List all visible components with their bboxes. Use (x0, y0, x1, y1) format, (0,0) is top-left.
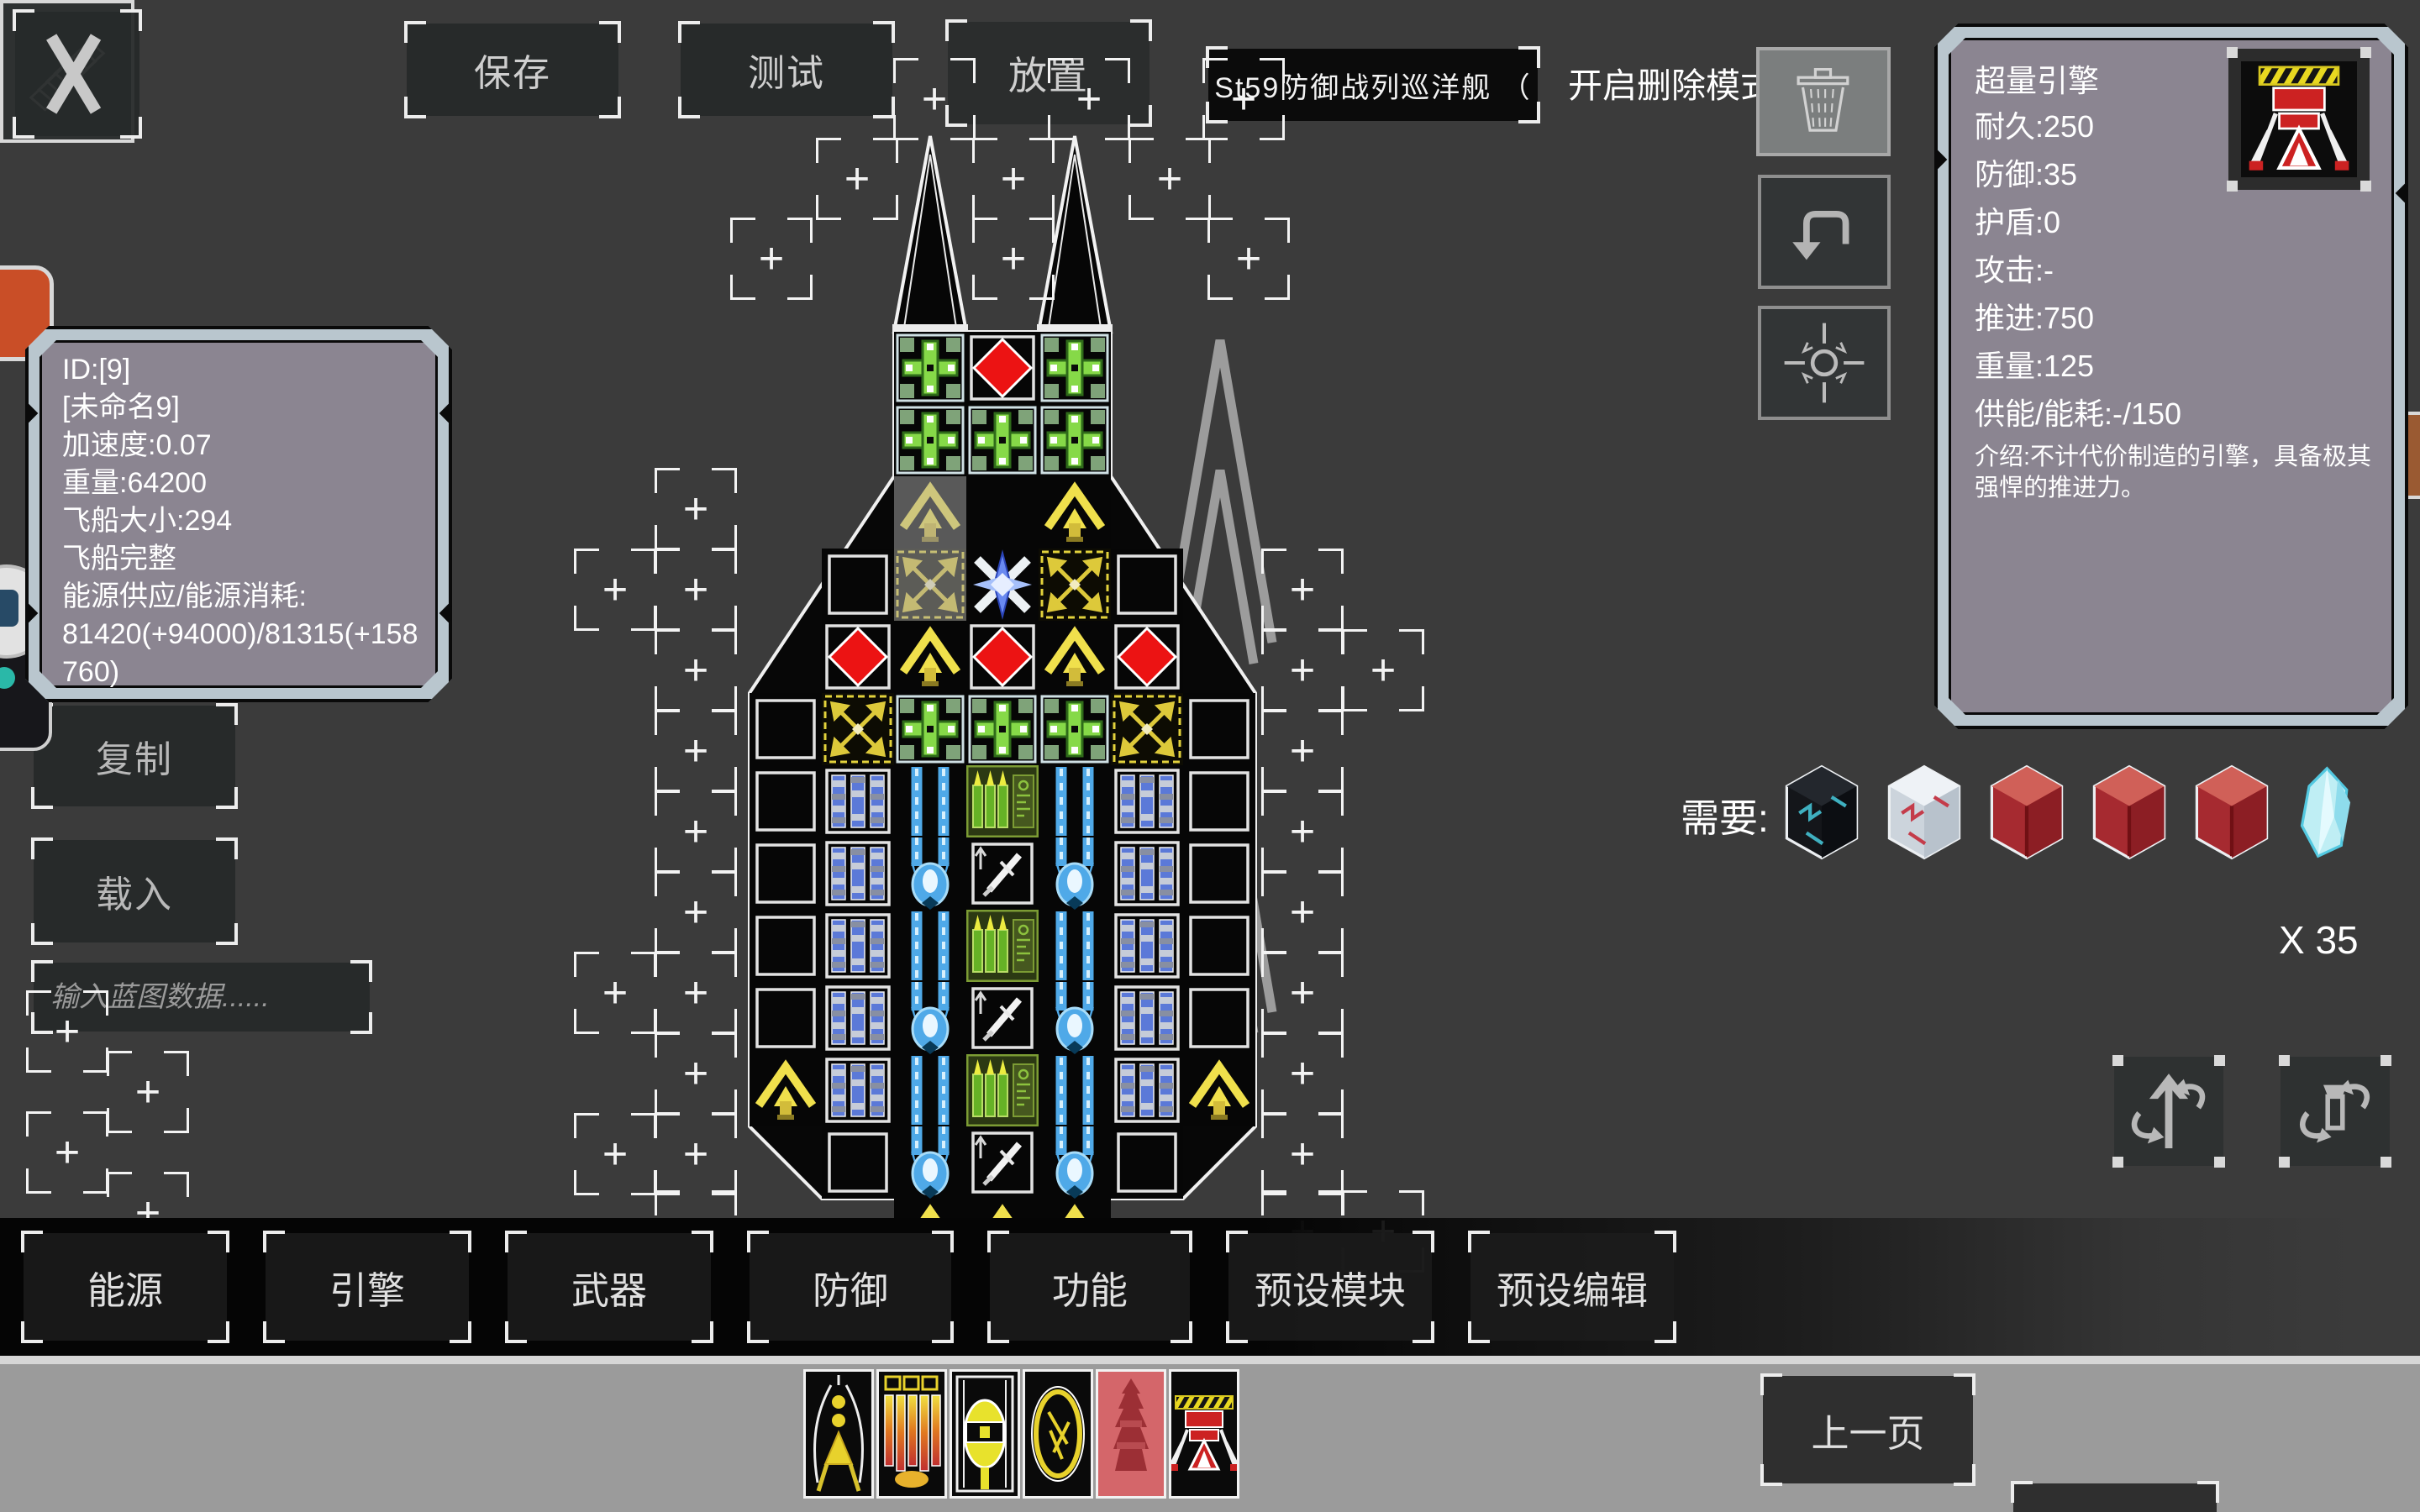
app-icon-glyph (0, 667, 15, 689)
close-button[interactable] (15, 12, 139, 136)
placement-slot[interactable]: + (1131, 140, 1208, 218)
placement-slot[interactable]: + (657, 1035, 734, 1112)
placement-slot[interactable]: + (1264, 1116, 1341, 1193)
plus-marker: + (975, 140, 1052, 218)
plus-marker: + (576, 1116, 654, 1193)
module-stats: 耐久:250防御:35护盾:0攻击:-推进:750重量:125供能/能耗:-/1… (1975, 102, 2181, 438)
placement-slot[interactable]: + (1264, 551, 1341, 628)
ship-tile-green-cross-module[interactable] (966, 693, 1039, 765)
placement-slot[interactable]: + (576, 1116, 654, 1193)
plus-marker: + (896, 60, 973, 138)
builder-screen: +++++++++++++++++++++++++++++++++++++ 保存… (0, 0, 2420, 1512)
category-tabs: 能源引擎武器防御功能预设模块预设编辑 (24, 1233, 1674, 1341)
placement-slot[interactable]: + (1050, 60, 1128, 138)
placement-slot[interactable]: + (657, 954, 734, 1032)
test-label: 测试 (748, 43, 825, 97)
placement-slot[interactable]: + (818, 140, 896, 218)
plus-marker: + (1131, 140, 1208, 218)
placement-slot[interactable]: + (29, 1114, 106, 1191)
copy-button[interactable]: 复制 (34, 706, 235, 806)
plus-marker: + (1264, 632, 1341, 709)
plus-marker: + (818, 140, 896, 218)
placement-slot[interactable]: + (109, 1053, 187, 1131)
placement-slot[interactable]: + (733, 220, 810, 297)
ship-info-line: 81420(+94000)/81315(+158760) (62, 616, 423, 691)
rotate-module-icon (2289, 1065, 2381, 1158)
placement-slot[interactable]: + (1264, 954, 1341, 1032)
trash-icon (1783, 61, 1864, 142)
placement-slot[interactable]: + (1264, 793, 1341, 870)
plus-marker: + (657, 1035, 734, 1112)
ship-tile-chain-weapon[interactable] (1039, 765, 1111, 837)
ship-tile-blue-star-core[interactable] (966, 549, 1039, 621)
tab-label: 预设模块 (1255, 1260, 1406, 1315)
ship-tile-green-battery[interactable] (966, 1054, 1039, 1126)
ship-tile-blue-lattice-module[interactable] (1111, 765, 1183, 837)
copy-label: 复制 (96, 729, 173, 783)
trash-button[interactable] (1756, 47, 1891, 156)
plus-marker: + (1264, 551, 1341, 628)
ship-tile-blue-lattice-module[interactable] (822, 1054, 894, 1126)
rotate-up-icon (2123, 1065, 2215, 1158)
ship-tile-frame-cell[interactable] (750, 982, 822, 1054)
ship-tile-yellow-thruster-selected[interactable] (894, 476, 966, 549)
plus-marker: + (1210, 220, 1287, 297)
ship-tile-red-diamond-module[interactable] (1111, 621, 1183, 693)
plus-marker: + (1264, 1116, 1341, 1193)
ship-tile-chain-claw[interactable] (1039, 1126, 1111, 1199)
plus-marker: + (733, 220, 810, 297)
ship-tile-green-cross-module[interactable] (966, 404, 1039, 476)
plus-marker: + (1264, 954, 1341, 1032)
ship-tile-red-diamond-module[interactable] (966, 621, 1039, 693)
load-button[interactable]: 载入 (34, 840, 235, 942)
palette-engine-overload[interactable] (1169, 1369, 1239, 1499)
ship-info-line: ID:[9] (62, 351, 423, 389)
ship-tile-frame-cell[interactable] (1183, 837, 1255, 910)
strip-highlight (0, 1356, 2420, 1364)
tab-label: 武器 (571, 1260, 647, 1315)
module-title: 超量引擎 (1975, 55, 2099, 101)
resource-gem-red-icon (2089, 763, 2170, 862)
placement-slot[interactable]: + (657, 874, 734, 951)
tab-label: 能源 (87, 1260, 163, 1315)
module-stat-line: 供能/能耗:-/150 (1975, 390, 2181, 438)
plus-marker: + (1344, 632, 1422, 709)
resource-cube-dark-circuit-icon (1781, 763, 1862, 862)
undo-icon (1782, 190, 1866, 274)
placement-slot[interactable]: + (1264, 712, 1341, 790)
placement-slot[interactable]: + (657, 793, 734, 870)
placement-slot[interactable]: + (1264, 632, 1341, 709)
plus-marker: + (576, 551, 654, 628)
palette-engine-red-silhouette[interactable] (1096, 1369, 1166, 1499)
delete-mode-toggle[interactable]: 开启删除模式 (1568, 57, 1775, 108)
tab-武器[interactable]: 武器 (508, 1233, 711, 1341)
placement-slot[interactable]: + (576, 551, 654, 628)
spire-left (892, 136, 968, 332)
resource-gem-red-icon (1986, 763, 2067, 862)
plus-marker: + (657, 632, 734, 709)
ship-tile-frame-cell[interactable] (822, 549, 894, 621)
plus-marker: + (1264, 793, 1341, 870)
ship-tile-gold-tool-module[interactable] (1111, 693, 1183, 765)
ship-info-lines: ID:[9][未命名9]加速度:0.07重量:64200飞船大小:294飞船完整… (62, 351, 423, 691)
placement-slot[interactable]: + (657, 1116, 734, 1193)
ship-tile-blue-lattice-module[interactable] (1111, 910, 1183, 982)
ship-tile-frame-cell[interactable] (1183, 765, 1255, 837)
plus-marker: + (29, 1114, 106, 1191)
plus-marker: + (109, 1053, 187, 1131)
app-icon-glyph (0, 590, 18, 627)
ship-tile-frame-cell[interactable] (1111, 1126, 1183, 1199)
ship-tile-sword-module[interactable] (966, 982, 1039, 1054)
plus-marker: + (29, 993, 106, 1070)
placement-slot[interactable]: + (1264, 1035, 1341, 1112)
ship-tile-sword-module[interactable] (966, 1126, 1039, 1199)
ship-tile-frame-cell[interactable] (750, 765, 822, 837)
ship-info-body: ID:[9][未命名9]加速度:0.07重量:64200飞船大小:294飞船完整… (39, 340, 438, 688)
ship-tile-yellow-thruster[interactable] (894, 621, 966, 693)
resource-gem-red-icon (2191, 763, 2272, 862)
ship-tile-yellow-thruster[interactable] (1039, 476, 1111, 549)
palette-engine-ring[interactable] (1023, 1369, 1093, 1499)
ship-tile-hull-cell[interactable] (966, 476, 1039, 549)
ship-tile-gold-tool-module[interactable] (1039, 549, 1111, 621)
ship-tile-green-cross-module[interactable] (1039, 404, 1111, 476)
ship-tile-chain-claw[interactable] (894, 982, 966, 1054)
plus-marker: + (1205, 60, 1282, 138)
ship-tile-chain-claw[interactable] (1039, 982, 1111, 1054)
ship-info-panel: ID:[9][未命名9]加速度:0.07重量:64200飞船大小:294飞船完整… (25, 326, 452, 702)
ship-tile-frame-cell[interactable] (750, 910, 822, 982)
ship-tile-frame-cell[interactable] (1183, 910, 1255, 982)
rotate-module-button[interactable] (2281, 1057, 2390, 1166)
placement-slot[interactable]: + (1264, 874, 1341, 951)
tab-防御[interactable]: 防御 (750, 1233, 951, 1341)
prev-page-label: 上一页 (1811, 1403, 1924, 1457)
ship-tile-blue-lattice-module[interactable] (822, 837, 894, 910)
ship-tile-green-cross-module[interactable] (894, 332, 966, 404)
undo-button[interactable] (1758, 175, 1891, 289)
placement-slot[interactable]: + (975, 220, 1052, 297)
placement-slot[interactable]: + (29, 993, 106, 1070)
tab-label: 引擎 (329, 1260, 405, 1315)
ship-tile-blue-lattice-module[interactable] (1111, 1054, 1183, 1126)
plus-marker: + (1264, 1035, 1341, 1112)
ship-tile-blue-lattice-module[interactable] (1111, 982, 1183, 1054)
ship-tile-yellow-thruster[interactable] (1183, 1054, 1255, 1126)
placement-slot[interactable]: + (657, 712, 734, 790)
plus-marker: + (657, 1116, 734, 1193)
module-stat-line: 护盾:0 (1975, 198, 2181, 246)
selected-module-tile[interactable] (2228, 49, 2370, 190)
ship-tile-frame-cell[interactable] (750, 693, 822, 765)
tab-功能[interactable]: 功能 (990, 1233, 1190, 1341)
palette-engine-oval-cross[interactable] (950, 1369, 1020, 1499)
next-page-button[interactable]: 下一页 (2013, 1483, 2217, 1512)
ship-info-line: 加速度:0.07 (62, 427, 423, 465)
placement-slot[interactable]: + (975, 140, 1052, 218)
placement-slot[interactable]: + (657, 632, 734, 709)
plus-marker: + (1050, 60, 1128, 138)
ship-tile-blue-lattice-module[interactable] (822, 982, 894, 1054)
plus-marker: + (1264, 712, 1341, 790)
ship-tile-blue-lattice-module[interactable] (822, 910, 894, 982)
plus-marker: + (1264, 874, 1341, 951)
ship-info-line: 飞船完整 (62, 540, 423, 578)
ship-info-line: 能源供应/能源消耗: (62, 578, 423, 616)
module-stat-line: 攻击:- (1975, 246, 2181, 294)
ship-tile-chain-claw[interactable] (894, 1126, 966, 1199)
tab-label: 预设编辑 (1497, 1260, 1648, 1315)
ship-tile-sword-module[interactable] (966, 837, 1039, 910)
plus-marker: + (657, 793, 734, 870)
plus-marker: + (576, 954, 654, 1032)
save-label: 保存 (474, 43, 551, 97)
delete-mode-label: 开启删除模式 (1568, 66, 1775, 105)
ship-tile-frame-cell[interactable] (1183, 982, 1255, 1054)
tab-能源[interactable]: 能源 (24, 1233, 227, 1341)
plus-marker: + (657, 551, 734, 628)
tab-label: 功能 (1052, 1260, 1128, 1315)
ship-tile-chain-weapon[interactable] (1039, 910, 1111, 982)
module-stat-line: 防御:35 (1975, 150, 2181, 198)
ship-tile-gold-tool-module-selected[interactable] (894, 549, 966, 621)
ship-info-line: [未命名9] (62, 389, 423, 427)
ship-tile-blue-lattice-module[interactable] (822, 765, 894, 837)
test-button[interactable]: 测试 (681, 24, 892, 116)
placement-slot[interactable]: + (657, 470, 734, 548)
ship-info-line: 重量:64200 (62, 465, 423, 502)
module-stat-line: 耐久:250 (1975, 102, 2181, 150)
ship-tile-frame-cell[interactable] (822, 1126, 894, 1199)
ship-tile-green-battery[interactable] (966, 765, 1039, 837)
tab-预设编辑[interactable]: 预设编辑 (1470, 1233, 1674, 1341)
tab-label: 防御 (813, 1260, 888, 1315)
compass-icon (1781, 319, 1868, 407)
compass-button[interactable] (1758, 306, 1891, 420)
module-stat-line: 重量:125 (1975, 342, 2181, 390)
tab-预设模块[interactable]: 预设模块 (1228, 1233, 1432, 1341)
ship-tile-frame-cell[interactable] (750, 837, 822, 910)
ship-tile-yellow-thruster[interactable] (1039, 621, 1111, 693)
palette-engine-flame-organ[interactable] (876, 1369, 947, 1499)
module-description: 介绍:不计代价制造的引擎，具备极其强悍的推进力。 (1975, 442, 2378, 504)
rotate-direction-button[interactable] (2114, 1057, 2223, 1166)
placement-slot[interactable]: + (1205, 60, 1282, 138)
ship-tile-chain-claw[interactable] (1039, 837, 1111, 910)
plus-marker: + (657, 712, 734, 790)
placement-slot[interactable]: + (657, 551, 734, 628)
requirements-label: 需要: (1681, 788, 1769, 843)
ship-tile-blue-lattice-module[interactable] (1111, 837, 1183, 910)
ship-tile-red-diamond-module[interactable] (966, 332, 1039, 404)
ship-tile-green-cross-module[interactable] (894, 693, 966, 765)
save-button[interactable]: 保存 (407, 24, 618, 116)
ship-tile-chain-weapon[interactable] (1039, 1054, 1111, 1126)
ship-tile-yellow-thruster[interactable] (750, 1054, 822, 1126)
placement-slot[interactable]: + (1210, 220, 1287, 297)
tab-引擎[interactable]: 引擎 (266, 1233, 469, 1341)
resource-crystal-cyan-icon (2282, 763, 2363, 862)
placement-slot[interactable]: + (1344, 632, 1422, 709)
ship-tile-green-cross-module[interactable] (894, 404, 966, 476)
palette-engine-rocket-yellow[interactable] (803, 1369, 874, 1499)
placement-slot[interactable]: + (896, 60, 973, 138)
ship-tile-gold-tool-module[interactable] (822, 693, 894, 765)
ship-tile-chain-weapon[interactable] (894, 910, 966, 982)
load-label: 载入 (96, 864, 173, 918)
ship-tile-chain-claw[interactable] (894, 837, 966, 910)
ship-tile-chain-weapon[interactable] (894, 765, 966, 837)
close-icon (31, 24, 124, 124)
module-stat-line: 推进:750 (1975, 294, 2181, 342)
ship-tile-chain-weapon[interactable] (894, 1054, 966, 1126)
ship-tile-green-cross-module[interactable] (1039, 693, 1111, 765)
prev-page-button[interactable]: 上一页 (1763, 1376, 1973, 1483)
ship-info-line: 飞船大小:294 (62, 502, 423, 540)
overload-engine-icon (2241, 61, 2357, 177)
ship-tile-red-diamond-module[interactable] (822, 621, 894, 693)
resource-cube-light-circuit-icon (1884, 763, 1965, 862)
plus-marker: + (657, 470, 734, 548)
plus-marker: + (657, 954, 734, 1032)
placement-slot[interactable]: + (576, 954, 654, 1032)
ship-tile-frame-cell[interactable] (1183, 693, 1255, 765)
ship-tile-frame-cell[interactable] (1111, 549, 1183, 621)
ship-tile-green-cross-module[interactable] (1039, 332, 1111, 404)
requirements-count: X 35 (2279, 917, 2359, 963)
plus-marker: + (657, 874, 734, 951)
plus-marker: + (975, 220, 1052, 297)
ship-tile-green-battery[interactable] (966, 910, 1039, 982)
